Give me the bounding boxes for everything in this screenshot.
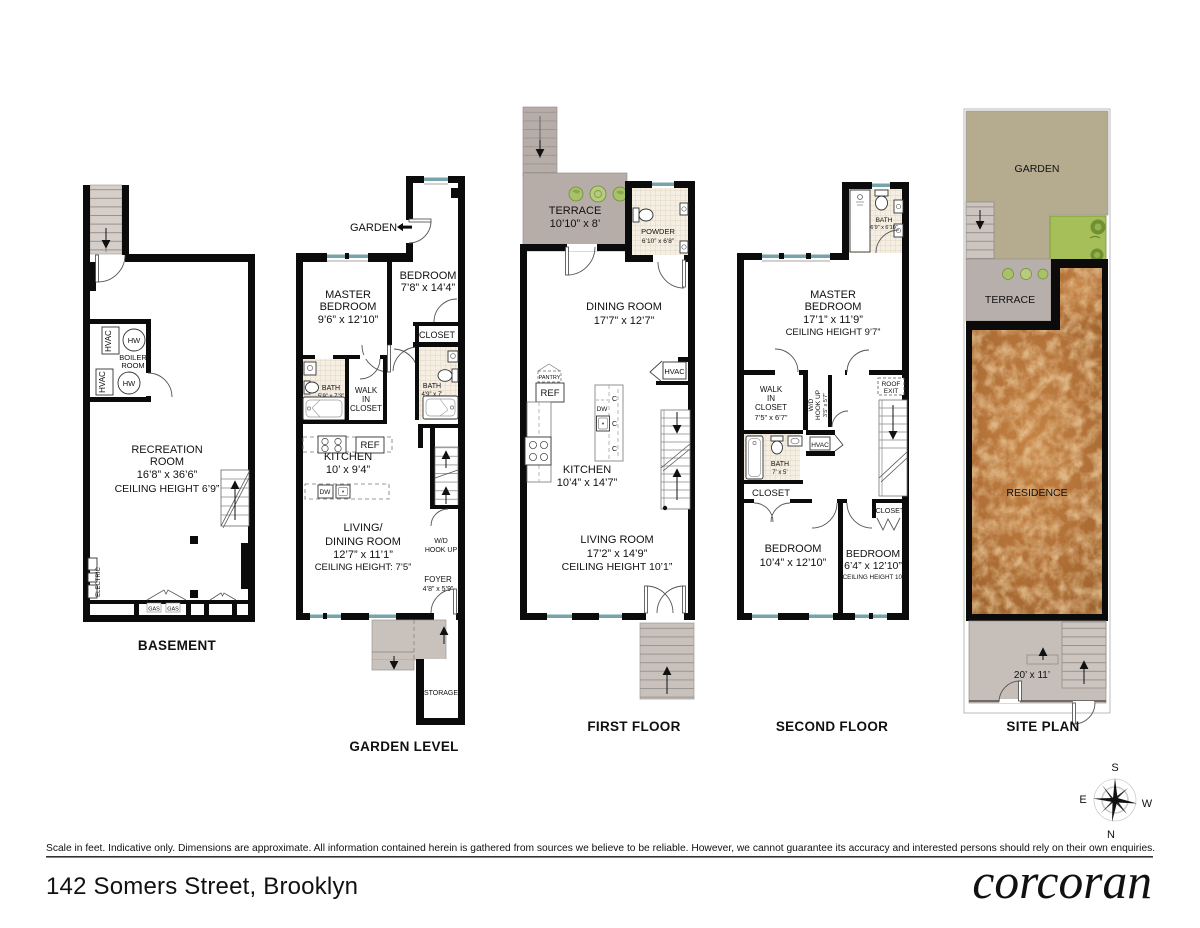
- svg-text:10’ x 9’4”: 10’ x 9’4”: [326, 464, 371, 476]
- svg-text:6’4” x 12’10”: 6’4” x 12’10”: [844, 560, 902, 572]
- svg-text:RECREATION: RECREATION: [131, 444, 202, 456]
- svg-text:PANTRY: PANTRY: [539, 375, 561, 381]
- svg-text:12’7” x 11’1”: 12’7” x 11’1”: [333, 549, 393, 561]
- svg-text:20’ x 11’: 20’ x 11’: [1014, 670, 1050, 681]
- svg-text:7’5” x 6’7”: 7’5” x 6’7”: [755, 413, 788, 422]
- svg-text:REF: REF: [541, 388, 560, 399]
- svg-text:MASTER: MASTER: [325, 289, 371, 301]
- svg-text:RESIDENCE: RESIDENCE: [1006, 487, 1067, 499]
- svg-text:BASEMENT: BASEMENT: [138, 638, 217, 653]
- svg-text:ROOM: ROOM: [150, 456, 184, 468]
- svg-text:BEDROOM: BEDROOM: [846, 548, 900, 560]
- svg-text:10’4” x 12’10”: 10’4” x 12’10”: [760, 557, 827, 569]
- svg-text:CEILING HEIGHT: 7’5”: CEILING HEIGHT: 7’5”: [315, 562, 412, 573]
- svg-text:HW: HW: [128, 336, 141, 345]
- svg-text:9’6” x 12’10”: 9’6” x 12’10”: [318, 314, 379, 326]
- svg-text:CLOSET: CLOSET: [752, 488, 790, 499]
- svg-text:CLOSET: CLOSET: [755, 403, 787, 412]
- svg-text:TERRACE: TERRACE: [549, 205, 602, 217]
- svg-text:S: S: [1111, 762, 1118, 774]
- svg-text:HOOK UP: HOOK UP: [815, 390, 822, 420]
- svg-text:C: C: [612, 446, 617, 453]
- svg-text:17’7” x 12’7”: 17’7” x 12’7”: [594, 315, 655, 327]
- svg-text:GARDEN LEVEL: GARDEN LEVEL: [349, 739, 458, 754]
- svg-text:3’5” x 5’7”: 3’5” x 5’7”: [823, 393, 829, 417]
- svg-text:GAS: GAS: [148, 607, 160, 613]
- svg-text:HVAC: HVAC: [811, 442, 829, 449]
- svg-text:17’2” x 14’9”: 17’2” x 14’9”: [587, 548, 648, 560]
- svg-text:SITE PLAN: SITE PLAN: [1006, 719, 1079, 734]
- svg-text:16’8” x 36’6”: 16’8” x 36’6”: [137, 469, 198, 481]
- svg-text:Scale in feet. Indicative only: Scale in feet. Indicative only. Dimensio…: [46, 843, 1155, 854]
- svg-text:BEDROOM: BEDROOM: [320, 301, 377, 313]
- svg-text:C: C: [612, 421, 617, 428]
- svg-text:DW: DW: [597, 406, 609, 413]
- svg-text:N: N: [1107, 829, 1115, 841]
- svg-text:CEILING HEIGHT 6’9”: CEILING HEIGHT 6’9”: [115, 483, 220, 495]
- svg-text:TERRACE: TERRACE: [985, 294, 1035, 306]
- svg-text:FOYER: FOYER: [424, 575, 452, 584]
- svg-text:corcoran: corcoran: [972, 854, 1152, 909]
- svg-text:7’ x 5’: 7’ x 5’: [772, 470, 787, 476]
- svg-text:HVAC: HVAC: [664, 367, 685, 376]
- svg-text:10’10” x 8’: 10’10” x 8’: [550, 218, 601, 230]
- svg-text:DINING ROOM: DINING ROOM: [586, 301, 662, 313]
- svg-text:CLOSET: CLOSET: [419, 330, 456, 340]
- svg-text:BATH: BATH: [322, 385, 340, 392]
- svg-text:ROOF: ROOF: [882, 381, 901, 388]
- svg-text:HVAC: HVAC: [104, 330, 113, 352]
- svg-text:EXIT: EXIT: [884, 388, 898, 395]
- svg-text:BEDROOM: BEDROOM: [805, 301, 862, 313]
- svg-text:HVAC: HVAC: [98, 371, 107, 393]
- svg-text:REF: REF: [361, 440, 380, 451]
- svg-text:142 Somers Street, Brooklyn: 142 Somers Street, Brooklyn: [46, 873, 358, 900]
- svg-text:6’10” x 6’8”: 6’10” x 6’8”: [642, 238, 674, 245]
- svg-text:7’8” x 14’4”: 7’8” x 14’4”: [401, 282, 456, 294]
- svg-text:BATH: BATH: [423, 383, 441, 390]
- svg-text:GARDEN: GARDEN: [350, 222, 397, 234]
- svg-text:STORAGE: STORAGE: [424, 690, 458, 697]
- svg-text:KITCHEN: KITCHEN: [563, 464, 611, 476]
- svg-text:KITCHEN: KITCHEN: [324, 451, 372, 463]
- svg-text:6’9” x 6’10”: 6’9” x 6’10”: [870, 225, 897, 231]
- svg-text:C: C: [612, 396, 617, 403]
- svg-text:CEILING HEIGHT 10’1”: CEILING HEIGHT 10’1”: [562, 561, 673, 573]
- svg-text:17’1” x 11’9”: 17’1” x 11’9”: [803, 314, 863, 326]
- svg-text:BEDROOM: BEDROOM: [400, 270, 457, 282]
- svg-text:BEDROOM: BEDROOM: [765, 543, 822, 555]
- svg-text:SECOND FLOOR: SECOND FLOOR: [776, 719, 888, 734]
- svg-text:MASTER: MASTER: [810, 289, 856, 301]
- svg-text:WALK: WALK: [355, 386, 378, 395]
- svg-text:W/D: W/D: [808, 398, 815, 411]
- svg-text:WALK: WALK: [760, 385, 783, 394]
- svg-text:HW: HW: [123, 379, 136, 388]
- svg-text:W/D: W/D: [434, 538, 448, 545]
- svg-text:POWDER: POWDER: [641, 227, 675, 236]
- svg-text:HOOK UP: HOOK UP: [425, 547, 458, 554]
- svg-text:CEILING HEIGHT 9’7”: CEILING HEIGHT 9’7”: [786, 327, 881, 338]
- svg-text:DW: DW: [320, 489, 332, 496]
- svg-text:E: E: [1079, 794, 1086, 806]
- svg-text:IN: IN: [362, 395, 370, 404]
- svg-text:W: W: [1142, 798, 1153, 810]
- svg-text:CLOSET: CLOSET: [876, 506, 905, 515]
- svg-text:DINING ROOM: DINING ROOM: [325, 536, 401, 548]
- svg-text:BATH: BATH: [771, 461, 789, 468]
- svg-text:10’4” x 14’7”: 10’4” x 14’7”: [557, 477, 618, 489]
- svg-text:FIRST FLOOR: FIRST FLOOR: [587, 719, 680, 734]
- svg-text:GARDEN: GARDEN: [1015, 163, 1060, 175]
- svg-text:CLOSET: CLOSET: [350, 404, 382, 413]
- svg-text:LIVING ROOM: LIVING ROOM: [580, 534, 653, 546]
- svg-text:CEILING HEIGHT 10’: CEILING HEIGHT 10’: [843, 574, 904, 581]
- svg-text:BATH: BATH: [876, 217, 893, 224]
- svg-text:ELECTRIC: ELECTRIC: [96, 566, 102, 596]
- svg-text:ROOM: ROOM: [121, 361, 144, 370]
- svg-text:IN: IN: [767, 394, 775, 403]
- svg-text:LIVING/: LIVING/: [343, 522, 383, 534]
- svg-text:GAS: GAS: [167, 607, 179, 613]
